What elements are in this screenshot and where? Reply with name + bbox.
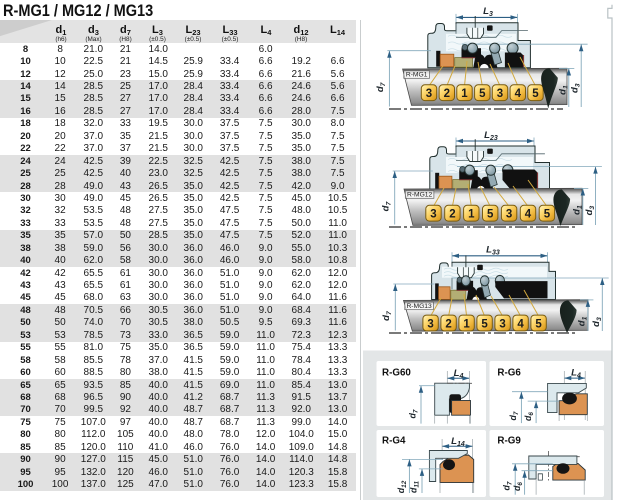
svg-text:1: 1 — [463, 319, 470, 331]
svg-text:2: 2 — [445, 319, 451, 331]
svg-text:3: 3 — [430, 209, 436, 221]
svg-text:3: 3 — [426, 88, 432, 100]
svg-text:1: 1 — [468, 209, 475, 221]
svg-text:5: 5 — [532, 88, 539, 100]
svg-text:2: 2 — [449, 209, 455, 221]
svg-text:4: 4 — [517, 319, 524, 331]
svg-text:4: 4 — [525, 209, 532, 221]
svg-text:5: 5 — [544, 209, 551, 221]
svg-text:4: 4 — [515, 88, 522, 100]
svg-text:R-G60: R-G60 — [382, 368, 411, 379]
svg-text:5: 5 — [487, 209, 494, 221]
svg-text:5: 5 — [535, 319, 542, 331]
svg-text:L23: L23 — [484, 130, 498, 142]
svg-text:L3: L3 — [483, 6, 493, 18]
svg-text:d3: d3 — [570, 83, 582, 93]
svg-text:3: 3 — [506, 209, 512, 221]
svg-text:1: 1 — [461, 88, 468, 100]
svg-text:R-G6: R-G6 — [497, 368, 521, 379]
svg-text:R-MG13: R-MG13 — [406, 303, 432, 310]
svg-text:R-MG1: R-MG1 — [406, 72, 428, 79]
svg-text:3: 3 — [497, 88, 503, 100]
svg-text:d3: d3 — [584, 206, 596, 216]
svg-text:d7: d7 — [380, 201, 392, 212]
svg-text:d7: d7 — [381, 310, 393, 321]
svg-text:R-G9: R-G9 — [497, 435, 521, 446]
svg-text:3: 3 — [427, 319, 433, 331]
svg-text:d3: d3 — [591, 317, 603, 327]
svg-text:5: 5 — [479, 88, 486, 100]
svg-text:3: 3 — [499, 319, 505, 331]
svg-text:5: 5 — [481, 319, 488, 331]
svg-text:L33: L33 — [486, 245, 500, 257]
svg-text:d7: d7 — [375, 81, 387, 92]
svg-text:2: 2 — [444, 88, 450, 100]
svg-text:R-MG12: R-MG12 — [407, 192, 433, 199]
svg-text:R-G4: R-G4 — [382, 436, 406, 447]
